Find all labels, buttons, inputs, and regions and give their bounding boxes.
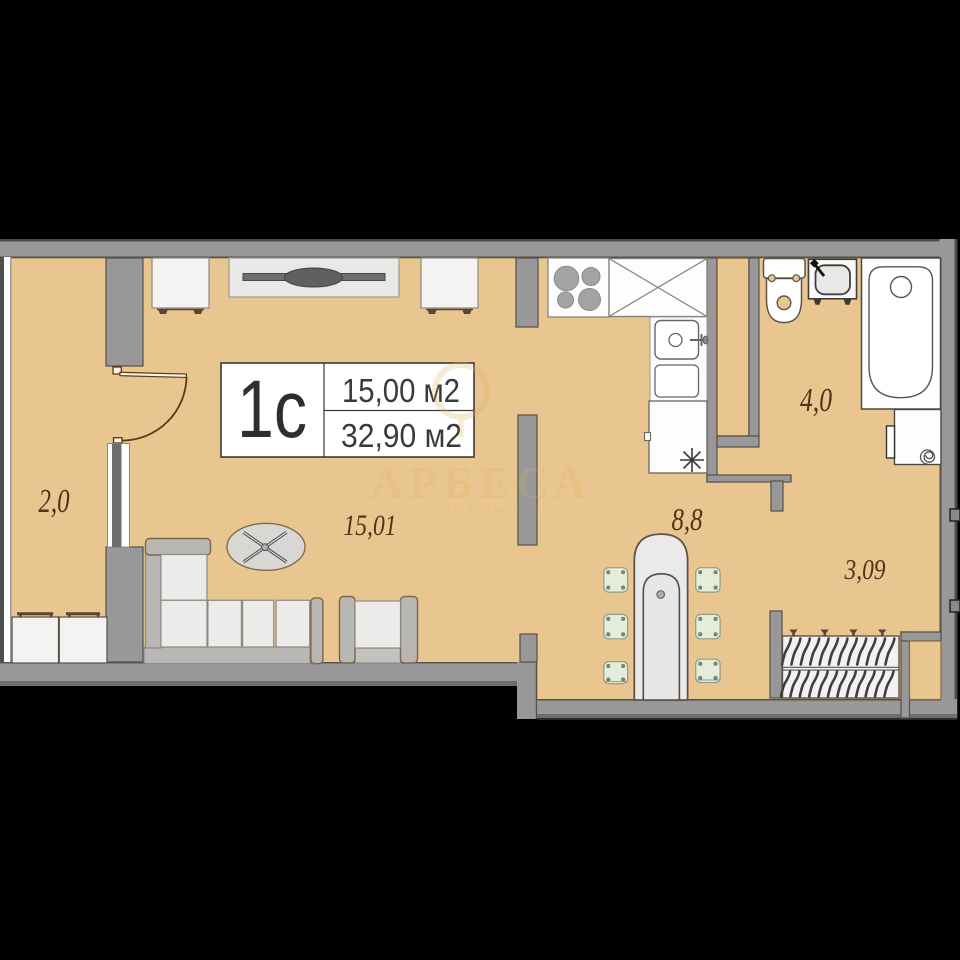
svg-text:НЕДВИЖИМОСТЬ: НЕДВИЖИМОСТЬ [408,503,554,517]
svg-text:3,09: 3,09 [844,555,886,586]
svg-text:АРБЕСА: АРБЕСА [370,457,593,508]
svg-text:32,90 м2: 32,90 м2 [341,417,462,454]
svg-text:15,01: 15,01 [344,509,397,542]
svg-text:1с: 1с [237,364,307,455]
svg-text:2,0: 2,0 [39,483,70,520]
svg-text:4,0: 4,0 [800,382,832,419]
svg-text:8,8: 8,8 [672,501,703,537]
